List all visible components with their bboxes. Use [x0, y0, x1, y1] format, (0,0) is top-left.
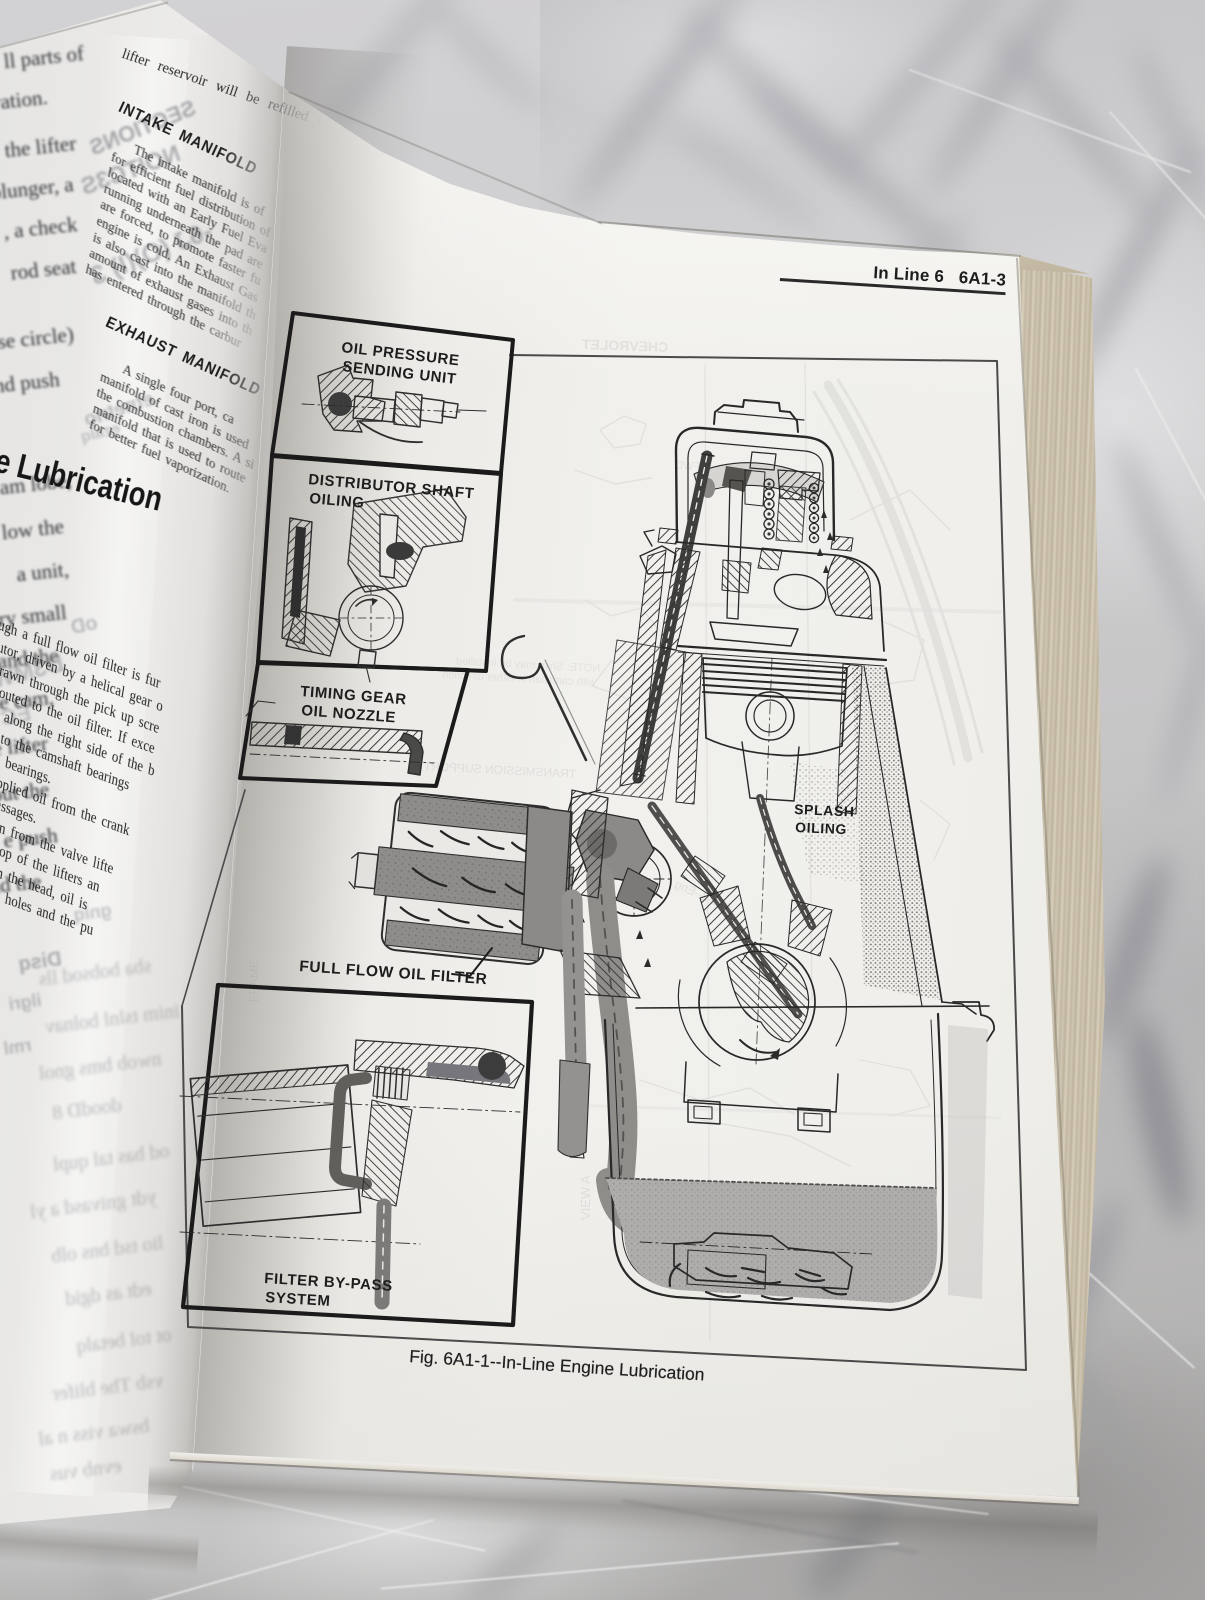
svg-text:SYSTEM: SYSTEM: [265, 1289, 331, 1310]
svg-text:CHEVROLET: CHEVROLET: [581, 336, 668, 355]
svg-text:FULL FLOW OIL FILTER: FULL FLOW OIL FILTER: [299, 958, 488, 988]
svg-text:SPLASH: SPLASH: [794, 801, 855, 820]
svg-text:TRANSMISSION SUPPORT: TRANSMISSION SUPPORT: [423, 759, 577, 781]
svg-text:VIEW A: VIEW A: [578, 1175, 593, 1220]
svg-text:OILING: OILING: [795, 819, 847, 837]
svg-text:FRAME: FRAME: [247, 960, 261, 1002]
svg-text:OILING: OILING: [309, 490, 366, 512]
